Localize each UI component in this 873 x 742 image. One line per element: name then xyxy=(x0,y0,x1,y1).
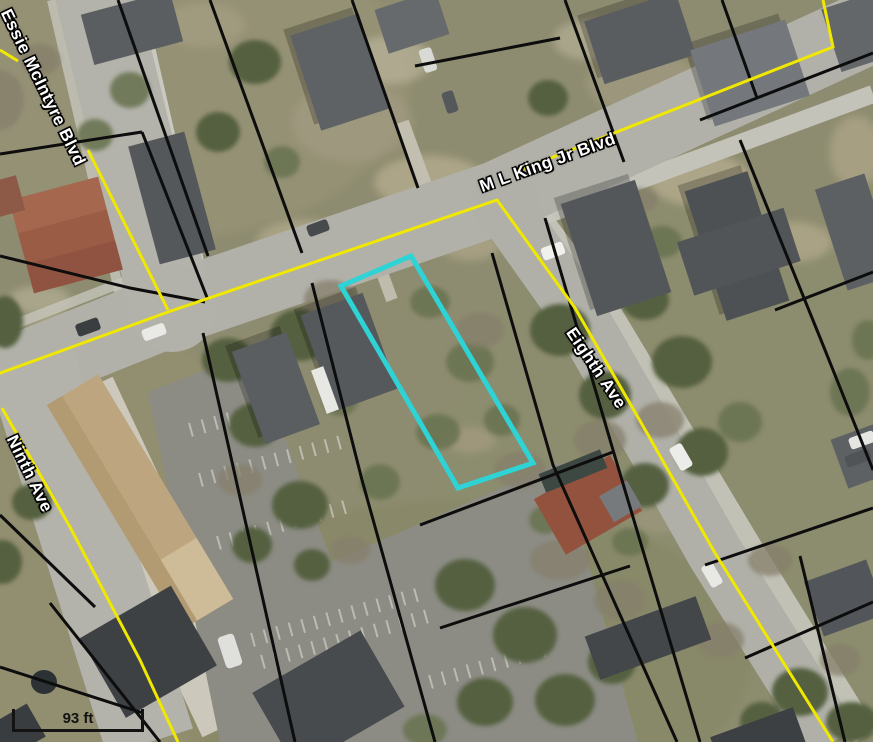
scale-bar-text: 93 ft xyxy=(15,710,141,727)
map-canvas[interactable]: Essie McIntyre Blvd M L King Jr Blvd Eig… xyxy=(0,0,873,742)
scale-bar: 93 ft xyxy=(12,709,144,732)
aerial-imagery xyxy=(0,0,873,742)
